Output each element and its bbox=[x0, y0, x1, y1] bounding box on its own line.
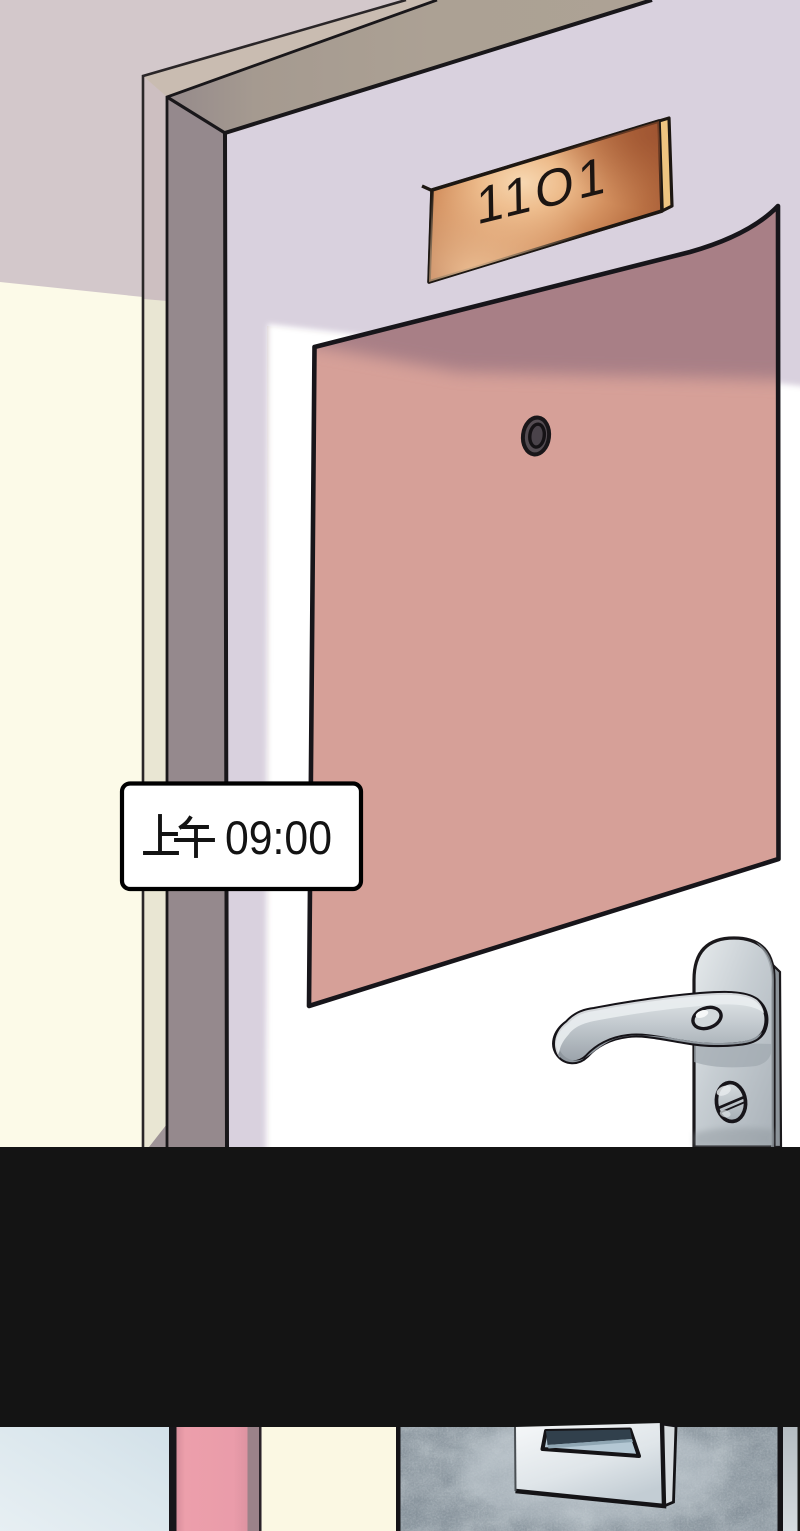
svg-text:09:00: 09:00 bbox=[225, 811, 332, 864]
